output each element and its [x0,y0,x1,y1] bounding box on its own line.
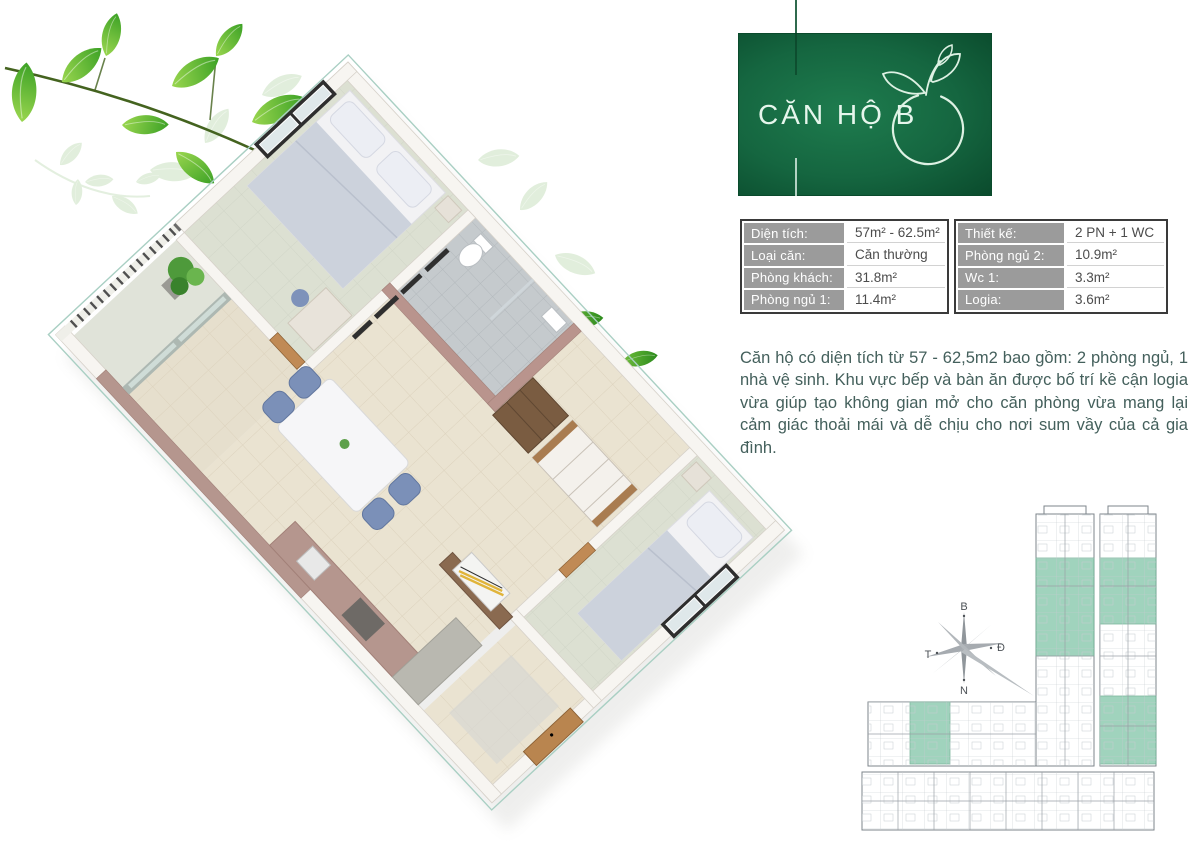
spec-value: 10.9m² [1067,245,1164,265]
spec-label: Phòng ngủ 1: [744,290,844,310]
compass-west-label: T [925,649,932,661]
spec-value: 3.6m² [1067,290,1164,310]
spec-table-right: Thiết kế: 2 PN + 1 WC Phòng ngủ 2: 10.9m… [954,219,1168,314]
spec-value: 57m² - 62.5m² [847,223,945,243]
spec-row: Loại căn: Căn thường [744,245,945,265]
spec-row: Phòng ngủ 1: 11.4m² [744,290,945,310]
accent-line-card-bottom [795,158,797,196]
accent-line-on-card [795,33,797,75]
spec-value: Căn thường [847,245,945,265]
spec-row: Phòng khách: 31.8m² [744,268,945,288]
unit-texture [862,514,1156,830]
compass-south-label: N [960,685,968,697]
spec-value: 2 PN + 1 WC [1067,223,1164,243]
spec-label: Diện tích: [744,223,844,243]
compass-rose: B Đ T N [925,601,1034,697]
title-card: CĂN HỘ B [738,33,992,196]
spec-label: Phòng khách: [744,268,844,288]
accent-line-top [795,0,797,33]
spec-label: Loại căn: [744,245,844,265]
spec-table-left: Diện tích: 57m² - 62.5m² Loại căn: Căn t… [740,219,949,314]
spec-value: 31.8m² [847,268,945,288]
floor-plate-diagram: B Đ T N [858,486,1200,857]
spec-row: Diện tích: 57m² - 62.5m² [744,223,945,243]
compass-east-label: Đ [997,642,1005,654]
spec-row: Thiết kế: 2 PN + 1 WC [958,223,1164,243]
spec-value: 3.3m² [1067,268,1164,288]
page: CĂN HỘ B Diện tích: 57m² - 62.5m² Loại c… [0,0,1200,857]
spec-row: Logia: 3.6m² [958,290,1164,310]
spec-row: Phòng ngủ 2: 10.9m² [958,245,1164,265]
spec-row: Wc 1: 3.3m² [958,268,1164,288]
compass-north-label: B [960,601,967,613]
spec-value: 11.4m² [847,290,945,310]
apartment-description: Căn hộ có diện tích từ 57 - 62,5m2 bao g… [740,347,1188,460]
spec-label: Thiết kế: [958,223,1064,243]
spec-label: Phòng ngủ 2: [958,245,1064,265]
leaf-circle-logo-icon [872,41,984,189]
spec-label: Wc 1: [958,268,1064,288]
spec-label: Logia: [958,290,1064,310]
